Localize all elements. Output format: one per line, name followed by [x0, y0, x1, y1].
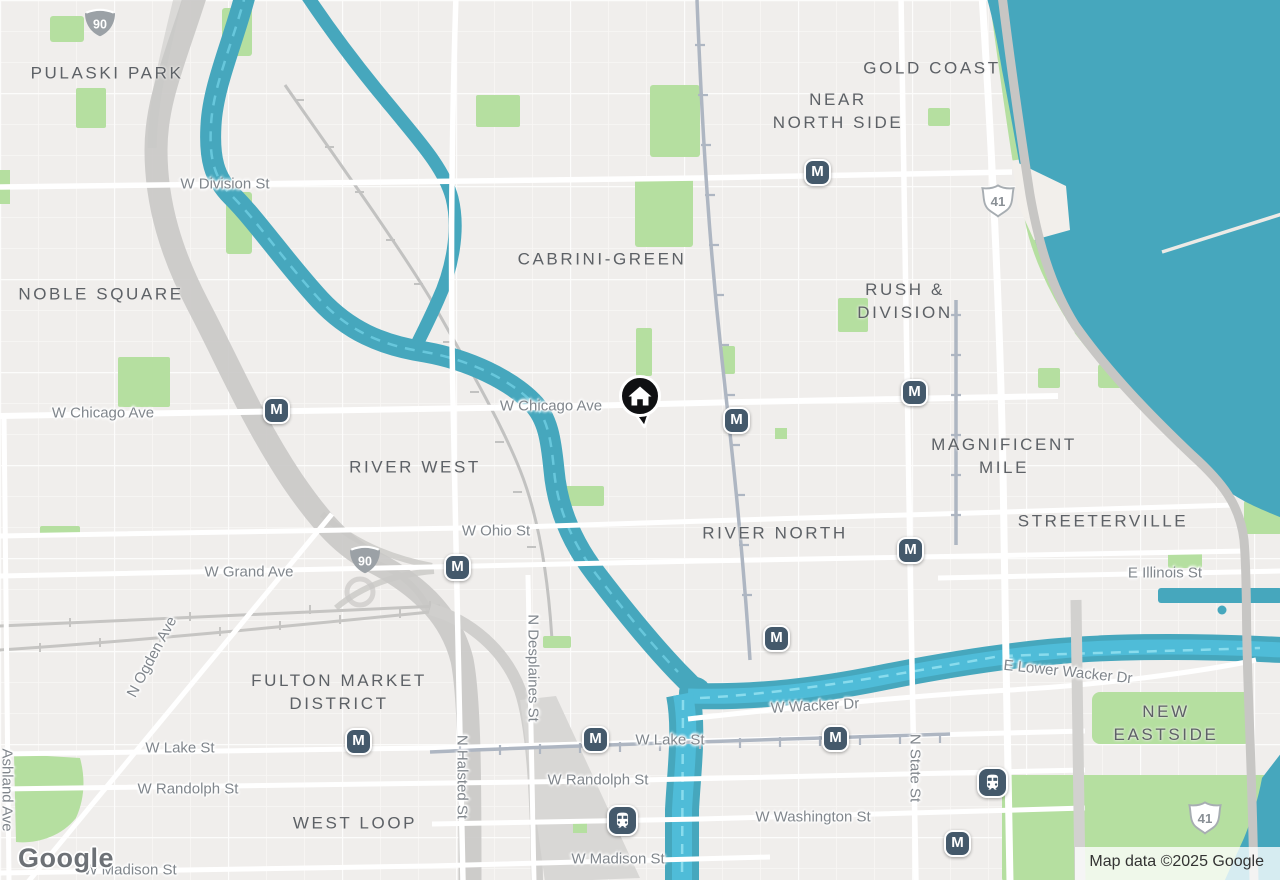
metro-station-icon[interactable]: M: [804, 159, 831, 186]
metro-station-icon[interactable]: M: [345, 728, 372, 755]
map-canvas[interactable]: PULASKI PARKGOLD COASTNEAR NORTH SIDENOB…: [0, 0, 1280, 880]
ogden-slip: [1158, 588, 1280, 603]
train-station-icon[interactable]: [977, 767, 1008, 798]
home-location-pin[interactable]: [615, 372, 665, 435]
columbus-dr-road: [1076, 600, 1080, 880]
metro-station-icon[interactable]: M: [582, 726, 609, 753]
metro-station-icon[interactable]: M: [723, 407, 750, 434]
metro-station-icon[interactable]: M: [944, 830, 971, 857]
metro-station-icon[interactable]: M: [444, 554, 471, 581]
metro-station-icon[interactable]: M: [822, 725, 849, 752]
eckhart-park: [118, 357, 170, 407]
metro-station-icon[interactable]: M: [901, 379, 928, 406]
metro-station-icon[interactable]: M: [763, 625, 790, 652]
train-station-icon[interactable]: [607, 805, 638, 836]
map-base-art: [0, 0, 1280, 880]
metro-station-icon[interactable]: M: [897, 537, 924, 564]
metro-station-icon[interactable]: M: [263, 397, 290, 424]
seward-park: [635, 177, 693, 247]
google-logo[interactable]: Google: [18, 843, 114, 874]
map-attribution: Map data ©2025 Google: [1075, 847, 1280, 880]
